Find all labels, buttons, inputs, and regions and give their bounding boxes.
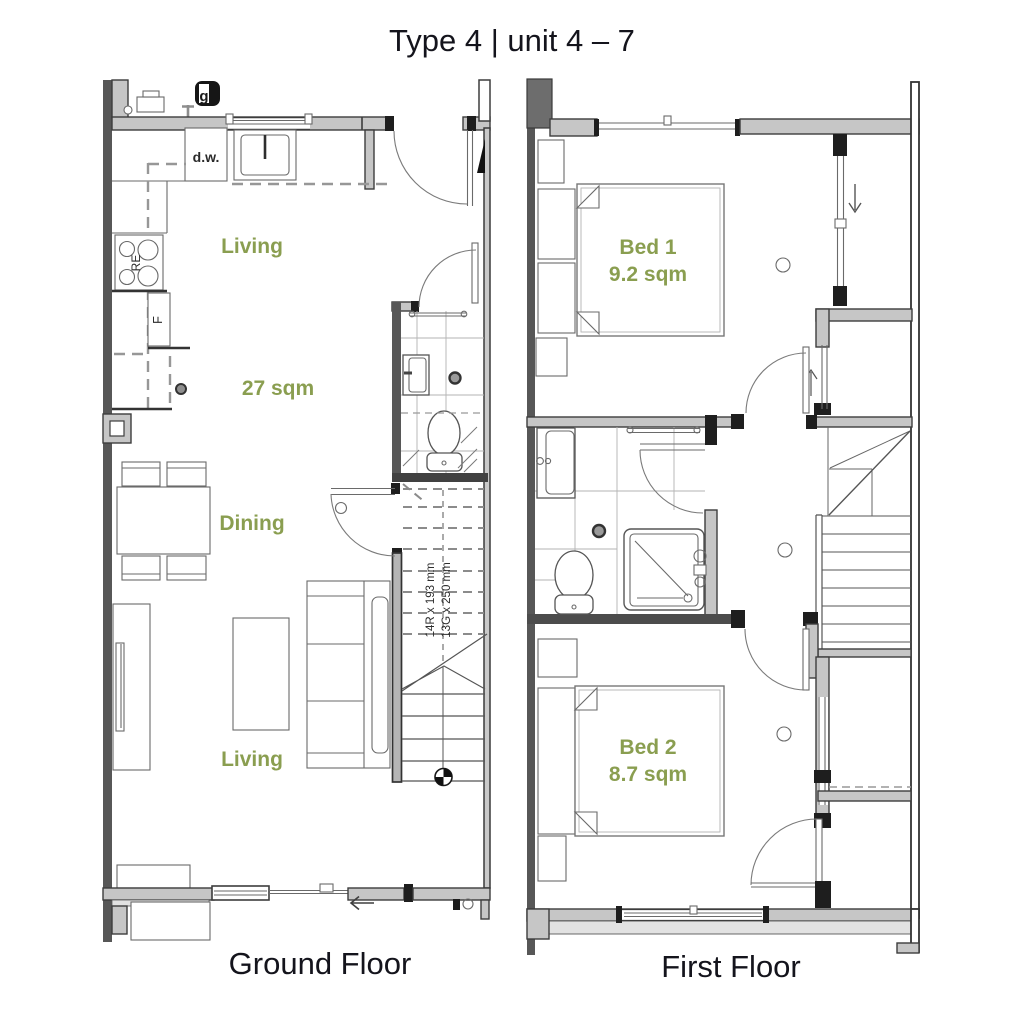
svg-text:Living: Living — [221, 748, 283, 771]
svg-text:First Floor: First Floor — [661, 949, 801, 984]
svg-text:g: g — [199, 88, 208, 105]
svg-text:RE: RE — [129, 255, 143, 272]
svg-text:Bed 1: Bed 1 — [619, 236, 677, 259]
svg-text:8.7 sqm: 8.7 sqm — [609, 763, 687, 786]
svg-text:Bed 2: Bed 2 — [619, 736, 676, 759]
svg-text:9.2 sqm: 9.2 sqm — [609, 263, 687, 286]
svg-text:Living: Living — [221, 235, 283, 258]
svg-text:27 sqm: 27 sqm — [242, 377, 314, 400]
svg-text:13G x 250 mm: 13G x 250 mm — [441, 562, 453, 637]
svg-text:Ground Floor: Ground Floor — [229, 946, 412, 981]
svg-text:Dining: Dining — [219, 512, 284, 535]
svg-text:14R x 193 mm: 14R x 193 mm — [425, 563, 437, 638]
svg-text:d.w.: d.w. — [193, 149, 220, 165]
svg-text:F: F — [150, 316, 165, 324]
svg-text:Type 4 | unit 4 – 7: Type 4 | unit 4 – 7 — [389, 23, 635, 58]
